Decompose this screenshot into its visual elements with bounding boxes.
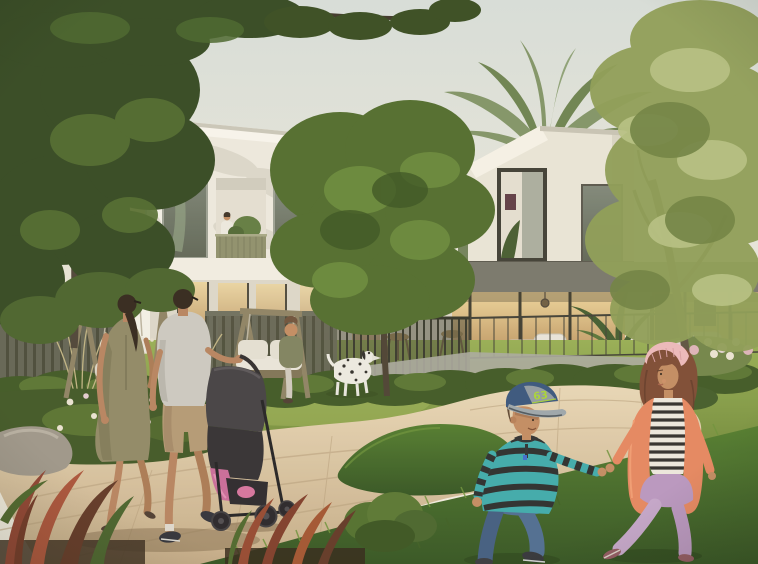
villa-community-rendering: 63 <box>0 0 758 564</box>
scene-svg: 63 <box>0 0 758 564</box>
vignette <box>0 0 758 564</box>
